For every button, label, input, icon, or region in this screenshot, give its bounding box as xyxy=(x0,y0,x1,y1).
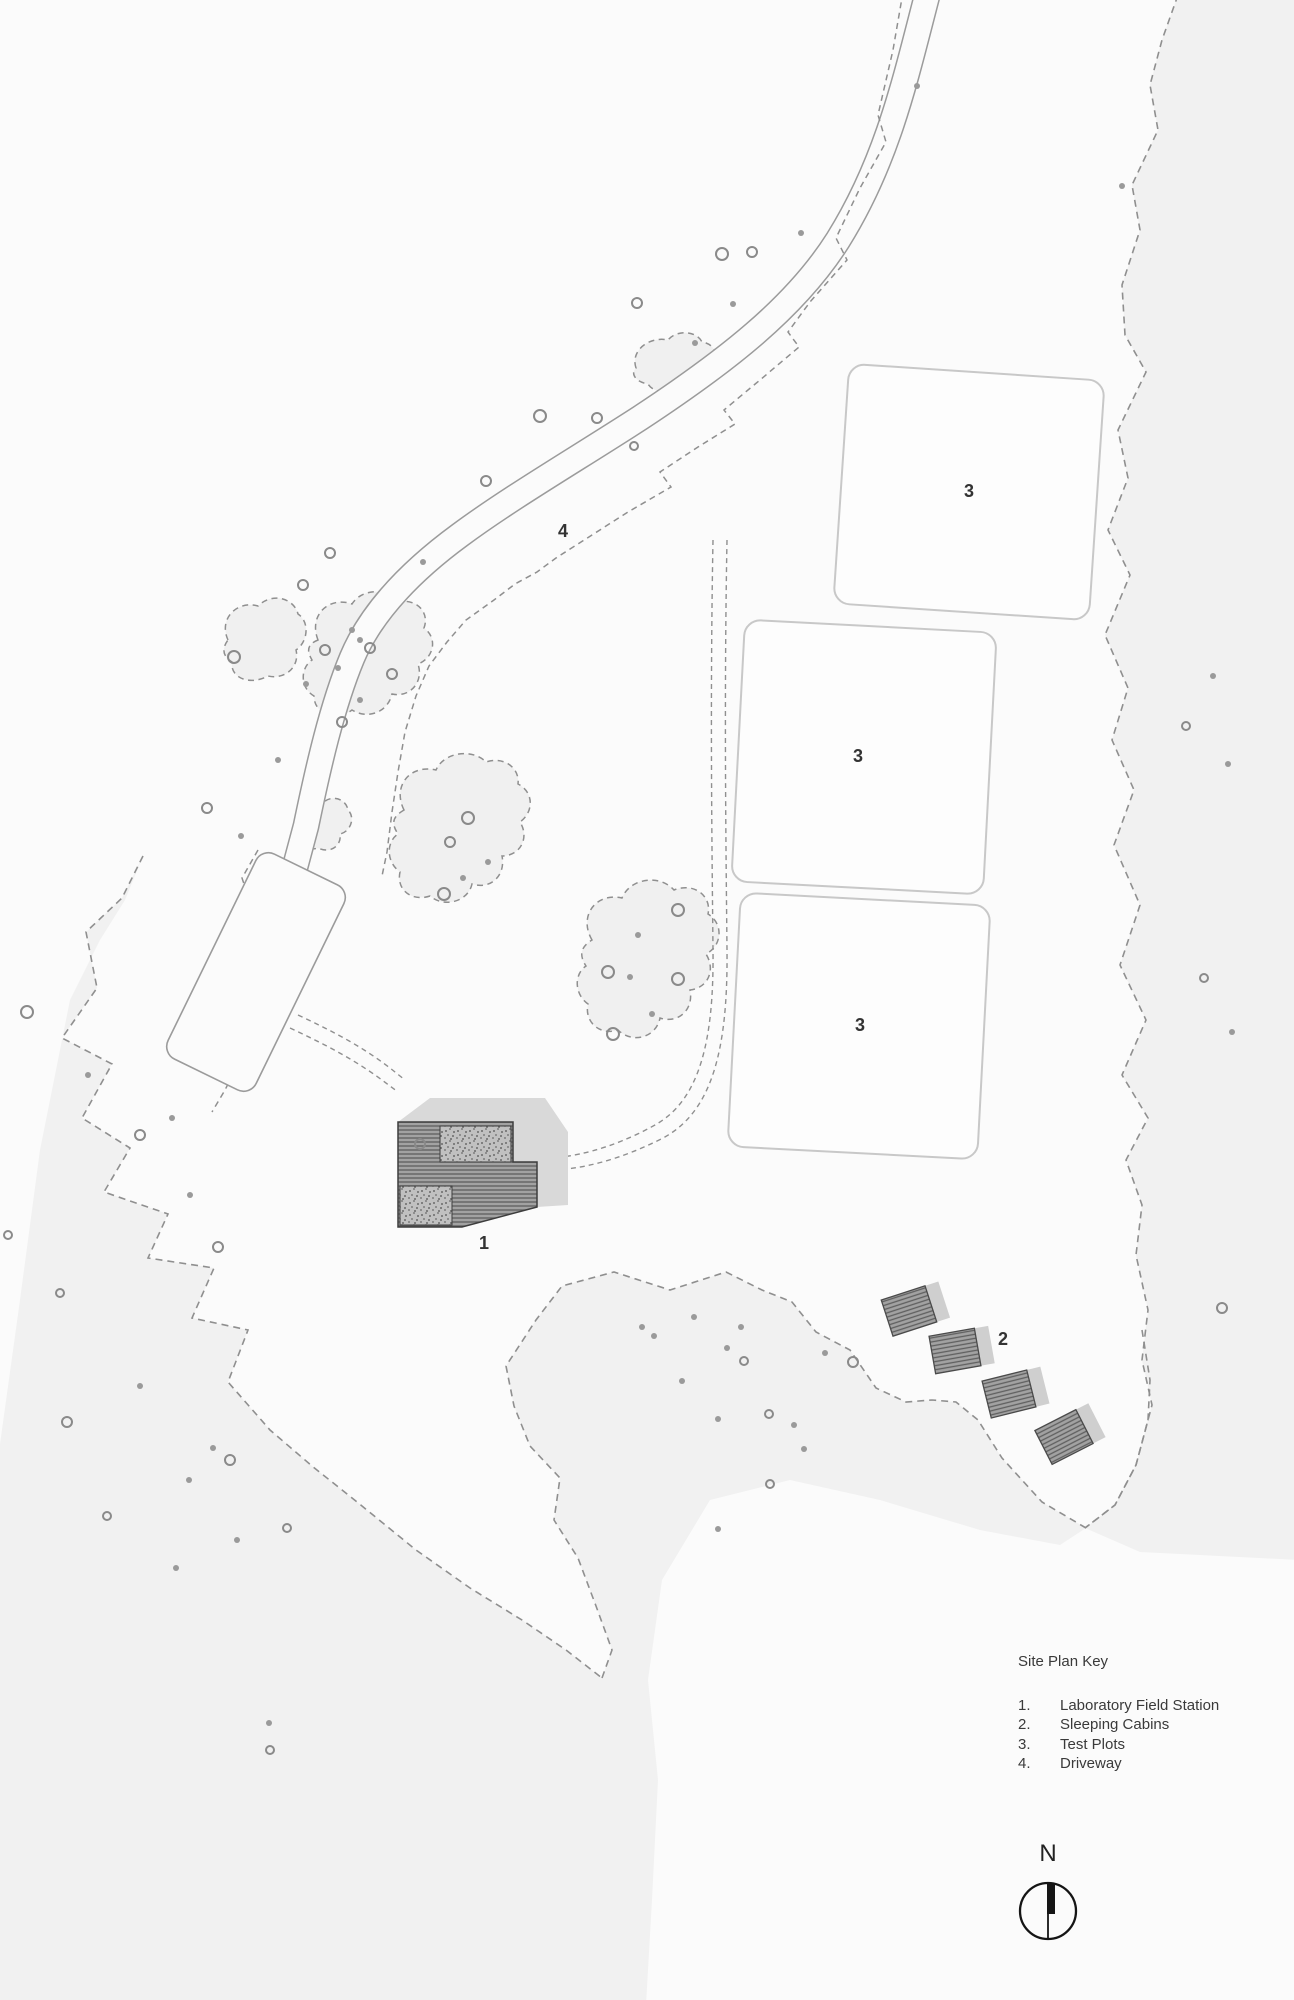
site-plan-key: Site Plan Key 1. Laboratory Field Statio… xyxy=(1018,1652,1278,1774)
label-test-plot: 3 xyxy=(964,481,974,501)
building-stipple-block xyxy=(400,1186,452,1225)
key-item: 2. Sleeping Cabins xyxy=(1018,1715,1278,1735)
key-item-label: Laboratory Field Station xyxy=(1060,1696,1278,1716)
north-letter: N xyxy=(988,1840,1108,1868)
label-sleeping-cabins: 2 xyxy=(998,1329,1008,1349)
footpath-parking-to-lab xyxy=(298,1015,405,1080)
key-item-number: 4. xyxy=(1018,1754,1060,1774)
key-item: 4. Driveway xyxy=(1018,1754,1278,1774)
tree-blob xyxy=(389,754,530,903)
cabin xyxy=(881,1281,950,1336)
key-title: Site Plan Key xyxy=(1018,1652,1278,1672)
test-plot-2 xyxy=(731,620,996,895)
key-item: 3. Test Plots xyxy=(1018,1735,1278,1755)
key-item: 1. Laboratory Field Station xyxy=(1018,1696,1278,1716)
cabin xyxy=(1035,1403,1106,1464)
key-item-number: 2. xyxy=(1018,1715,1060,1735)
footpath-road-to-lab xyxy=(548,540,727,1170)
label-driveway: 4 xyxy=(558,521,568,541)
cabin xyxy=(982,1367,1049,1418)
forest-region-right xyxy=(1085,0,1294,1560)
label-test-plot: 3 xyxy=(853,746,863,766)
tree-blob xyxy=(224,598,306,680)
parking-pad xyxy=(162,848,350,1096)
lab-field-station xyxy=(398,1098,568,1227)
footpath-parking-to-lab xyxy=(290,1028,398,1092)
cabin xyxy=(929,1326,995,1374)
key-item-number: 3. xyxy=(1018,1735,1060,1755)
label-lab-station: 1 xyxy=(479,1233,489,1253)
tree-blob xyxy=(577,880,719,1038)
key-item-label: Driveway xyxy=(1060,1754,1278,1774)
key-item-label: Sleeping Cabins xyxy=(1060,1715,1278,1735)
north-marker: N xyxy=(988,1840,1108,1960)
label-test-plot: 3 xyxy=(855,1015,865,1035)
building-stipple-block xyxy=(440,1126,511,1162)
key-item-number: 1. xyxy=(1018,1696,1060,1716)
footpath-road-to-lab xyxy=(545,540,713,1158)
site-plan-page: 1 2 3 3 3 4 Site Plan Key 1. Laboratory … xyxy=(0,0,1294,2000)
key-item-label: Test Plots xyxy=(1060,1735,1278,1755)
